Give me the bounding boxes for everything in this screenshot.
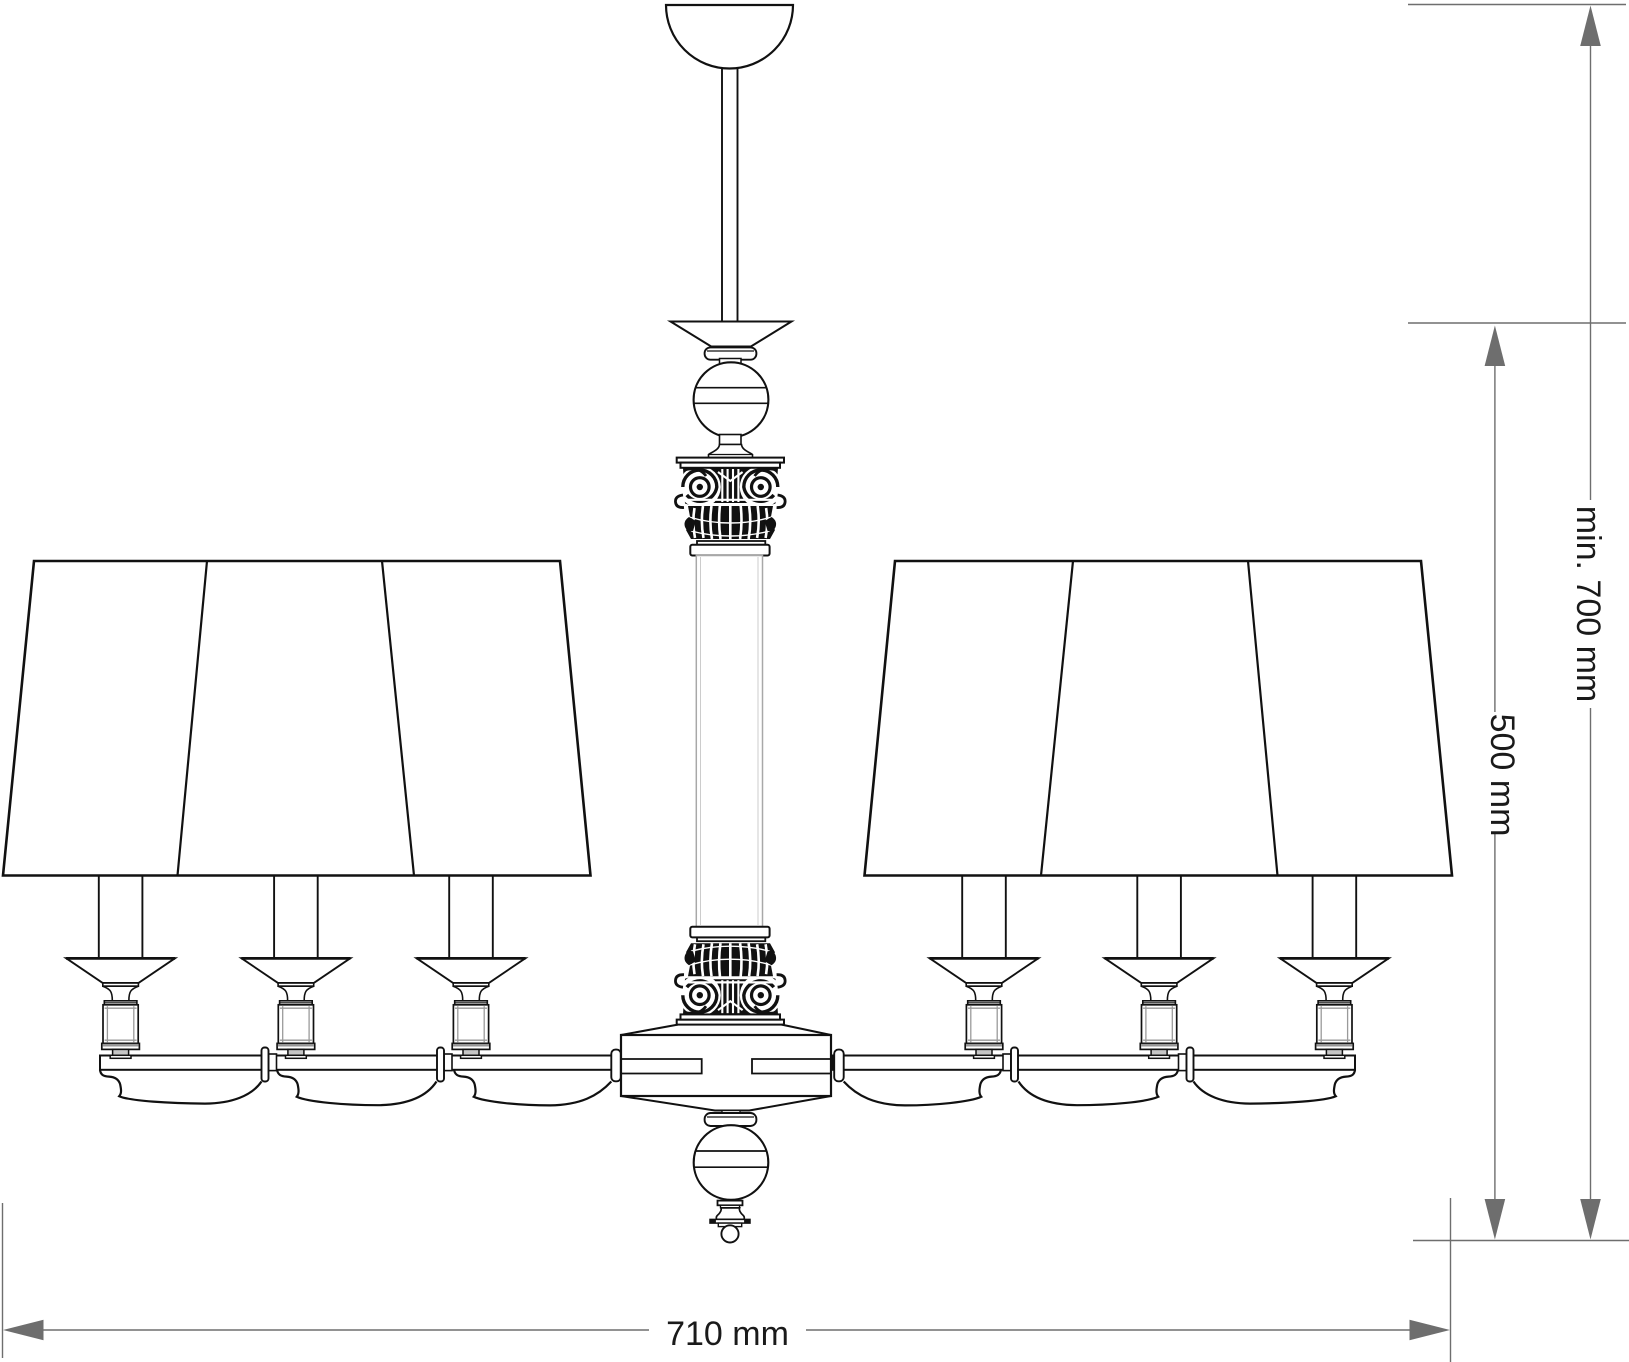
svg-text:min. 700 mm: min. 700 mm [1569,506,1607,703]
svg-text:710 mm: 710 mm [666,1315,789,1353]
svg-text:500 mm: 500 mm [1483,714,1521,837]
